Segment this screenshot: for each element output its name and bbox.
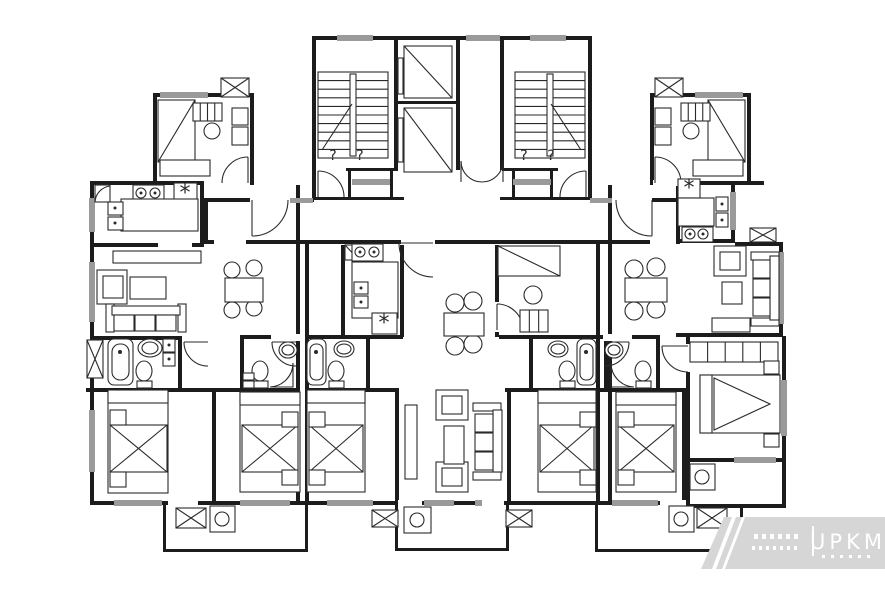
balcony-left-items bbox=[176, 506, 235, 532]
balcony-far-right-items bbox=[690, 464, 715, 490]
floor-plan-canvas: ????***UPKM bbox=[0, 0, 885, 591]
svg-text:?: ? bbox=[356, 148, 363, 164]
elevators bbox=[398, 46, 452, 172]
watermark: UPKM bbox=[701, 517, 885, 569]
svg-text:*: * bbox=[684, 176, 695, 201]
stairwell-left: ?? bbox=[318, 72, 388, 164]
svg-text:*: * bbox=[379, 311, 390, 336]
bed-right-1 bbox=[616, 392, 676, 492]
svg-text:?: ? bbox=[329, 148, 336, 164]
stairwell-right: ?? bbox=[515, 72, 585, 164]
bedroom-right-far bbox=[690, 342, 780, 447]
svg-text:?: ? bbox=[547, 148, 554, 164]
bed-left-1 bbox=[108, 390, 168, 493]
bed-center-2 bbox=[538, 390, 596, 492]
balcony-right-items bbox=[669, 506, 727, 532]
bed-left-2 bbox=[240, 392, 300, 492]
dining-center bbox=[444, 292, 484, 355]
svg-text:?: ? bbox=[520, 148, 527, 164]
floor-plan: ????***UPKM bbox=[0, 0, 885, 591]
svg-text:UPKM: UPKM bbox=[810, 530, 885, 554]
kitchen-left: * bbox=[95, 181, 198, 231]
bed-center-1 bbox=[307, 390, 365, 492]
